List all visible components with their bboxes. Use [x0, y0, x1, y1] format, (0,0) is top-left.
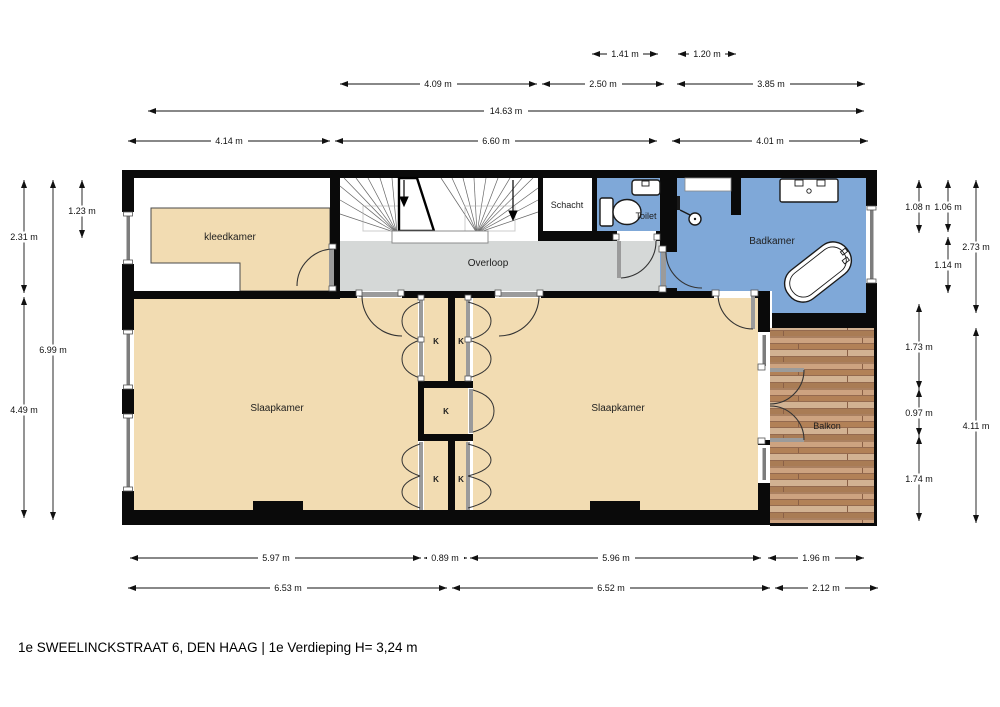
- dim-right-173: 1.73 m: [901, 304, 937, 389]
- chimney-left: [253, 501, 303, 510]
- dim-bottom-596: 5.96 m: [470, 553, 761, 564]
- closet-label-k5: K: [458, 475, 464, 484]
- svg-text:1.20 m: 1.20 m: [693, 49, 721, 59]
- window-slaapkamer-left-2: [122, 414, 134, 491]
- window-balkon-1: [758, 332, 770, 369]
- plan-title: 1e SWEELINCKSTRAAT 6, DEN HAAG | 1e Verd…: [18, 640, 418, 655]
- floorplan-page: kleedkamer Schacht Toilet Overloop Badka…: [0, 0, 1000, 707]
- svg-text:6.60 m: 6.60 m: [482, 136, 510, 146]
- svg-text:4.49 m: 4.49 m: [10, 405, 38, 415]
- svg-text:1.06 m: 1.06 m: [934, 202, 962, 212]
- svg-text:14.63 m: 14.63 m: [490, 106, 523, 116]
- svg-text:4.01 m: 4.01 m: [756, 136, 784, 146]
- dim-right-411: 4.11 m: [958, 328, 994, 523]
- svg-text:2.73 m: 2.73 m: [962, 242, 990, 252]
- dimensions-top: 1.41 m 1.20 m 4.09 m 2.50 m 3.85 m 14.63…: [128, 49, 868, 147]
- stair-landing-edge: [392, 231, 488, 243]
- toilet-washbasin: [632, 180, 660, 195]
- room-label-toilet: Toilet: [635, 211, 657, 221]
- svg-text:2.50 m: 2.50 m: [589, 79, 617, 89]
- room-label-badkamer: Badkamer: [749, 236, 795, 247]
- svg-text:6.99 m: 6.99 m: [39, 345, 67, 355]
- svg-text:4.11 m: 4.11 m: [963, 421, 990, 431]
- window-badkamer: [866, 206, 877, 283]
- svg-text:3.85 m: 3.85 m: [757, 79, 785, 89]
- svg-text:1.08 m: 1.08 m: [905, 202, 933, 212]
- svg-text:0.97 m: 0.97 m: [905, 408, 933, 418]
- window-balkon-2: [758, 445, 770, 483]
- svg-text:1.74 m: 1.74 m: [905, 474, 933, 484]
- svg-text:1.41 m: 1.41 m: [611, 49, 639, 59]
- closet-label-k1: K: [433, 337, 439, 346]
- room-label-balkon: Balkon: [813, 421, 841, 431]
- svg-text:2.31 m: 2.31 m: [10, 232, 38, 242]
- svg-text:1.96 m: 1.96 m: [802, 553, 830, 563]
- dim-top-409: 4.09 m: [340, 79, 537, 90]
- dim-bottom-212: 2.12 m: [775, 583, 878, 594]
- dim-bottom-653: 6.53 m: [128, 583, 447, 594]
- balkon-rail-bottom: [770, 523, 877, 526]
- dim-top-250: 2.50 m: [542, 79, 664, 90]
- svg-text:1.23 m: 1.23 m: [68, 206, 96, 216]
- dim-left-449: 4.49 m: [6, 297, 42, 518]
- window-kleedkamer: [122, 212, 134, 264]
- dim-left-123: 1.23 m: [64, 180, 100, 238]
- window-slaapkamer-left-1: [122, 330, 134, 389]
- svg-text:6.52 m: 6.52 m: [597, 583, 625, 593]
- closet-label-k2: K: [458, 337, 464, 346]
- dim-bottom-196: 1.96 m: [768, 553, 864, 564]
- svg-text:5.96 m: 5.96 m: [602, 553, 630, 563]
- dim-top-385: 3.85 m: [677, 79, 865, 90]
- badkamer-shelf: [685, 178, 731, 191]
- room-label-kleedkamer: kleedkamer: [204, 232, 256, 243]
- dimensions-bottom: 5.97 m 0.89 m 5.96 m 1.96 m 6.53 m 6.52 …: [128, 553, 878, 594]
- balkon-rail-right: [874, 328, 877, 526]
- room-label-schacht: Schacht: [551, 200, 584, 210]
- dim-left-699: 6.99 m: [35, 180, 71, 520]
- dim-right-106: 1.06 m: [930, 180, 966, 232]
- floorplan-drawing: kleedkamer Schacht Toilet Overloop Badka…: [0, 0, 1000, 707]
- svg-text:2.12 m: 2.12 m: [812, 583, 840, 593]
- dim-right-174: 1.74 m: [901, 436, 937, 521]
- svg-text:4.09 m: 4.09 m: [424, 79, 452, 89]
- dim-top-120: 1.20 m: [678, 49, 736, 60]
- room-label-overloop: Overloop: [468, 258, 509, 269]
- dim-top-1463: 14.63 m: [148, 106, 864, 117]
- dimensions-left: 1.23 m 2.31 m 6.99 m 4.49 m: [6, 180, 100, 520]
- svg-text:6.53 m: 6.53 m: [274, 583, 302, 593]
- room-label-slaapkamer-right: Slaapkamer: [591, 403, 645, 414]
- closet-label-k3: K: [443, 407, 449, 416]
- dim-bottom-652: 6.52 m: [452, 583, 770, 594]
- dim-right-273: 2.73 m: [958, 180, 994, 313]
- svg-text:0.89 m: 0.89 m: [431, 553, 459, 563]
- svg-text:1.14 m: 1.14 m: [934, 260, 962, 270]
- dim-right-097: 0.97 m: [901, 389, 937, 436]
- dim-bottom-597: 5.97 m: [130, 553, 421, 564]
- svg-text:5.97 m: 5.97 m: [262, 553, 290, 563]
- svg-text:1.73 m: 1.73 m: [905, 342, 933, 352]
- chimney-right: [590, 501, 640, 510]
- dimensions-right: 1.08 m 1.06 m 2.73 m 1.14 m 1.73 m 0.97 …: [901, 180, 994, 523]
- closet-label-k4: K: [433, 475, 439, 484]
- dim-top-660: 6.60 m: [335, 136, 657, 147]
- room-label-slaapkamer-left: Slaapkamer: [250, 403, 304, 414]
- dim-bottom-089: 0.89 m: [424, 553, 467, 564]
- dim-left-231: 2.31 m: [6, 180, 42, 293]
- badkamer-vanity: [780, 179, 838, 202]
- svg-text:4.14 m: 4.14 m: [215, 136, 243, 146]
- dim-top-401: 4.01 m: [672, 136, 868, 147]
- dim-top-414: 4.14 m: [128, 136, 330, 147]
- dim-top-141: 1.41 m: [592, 49, 658, 60]
